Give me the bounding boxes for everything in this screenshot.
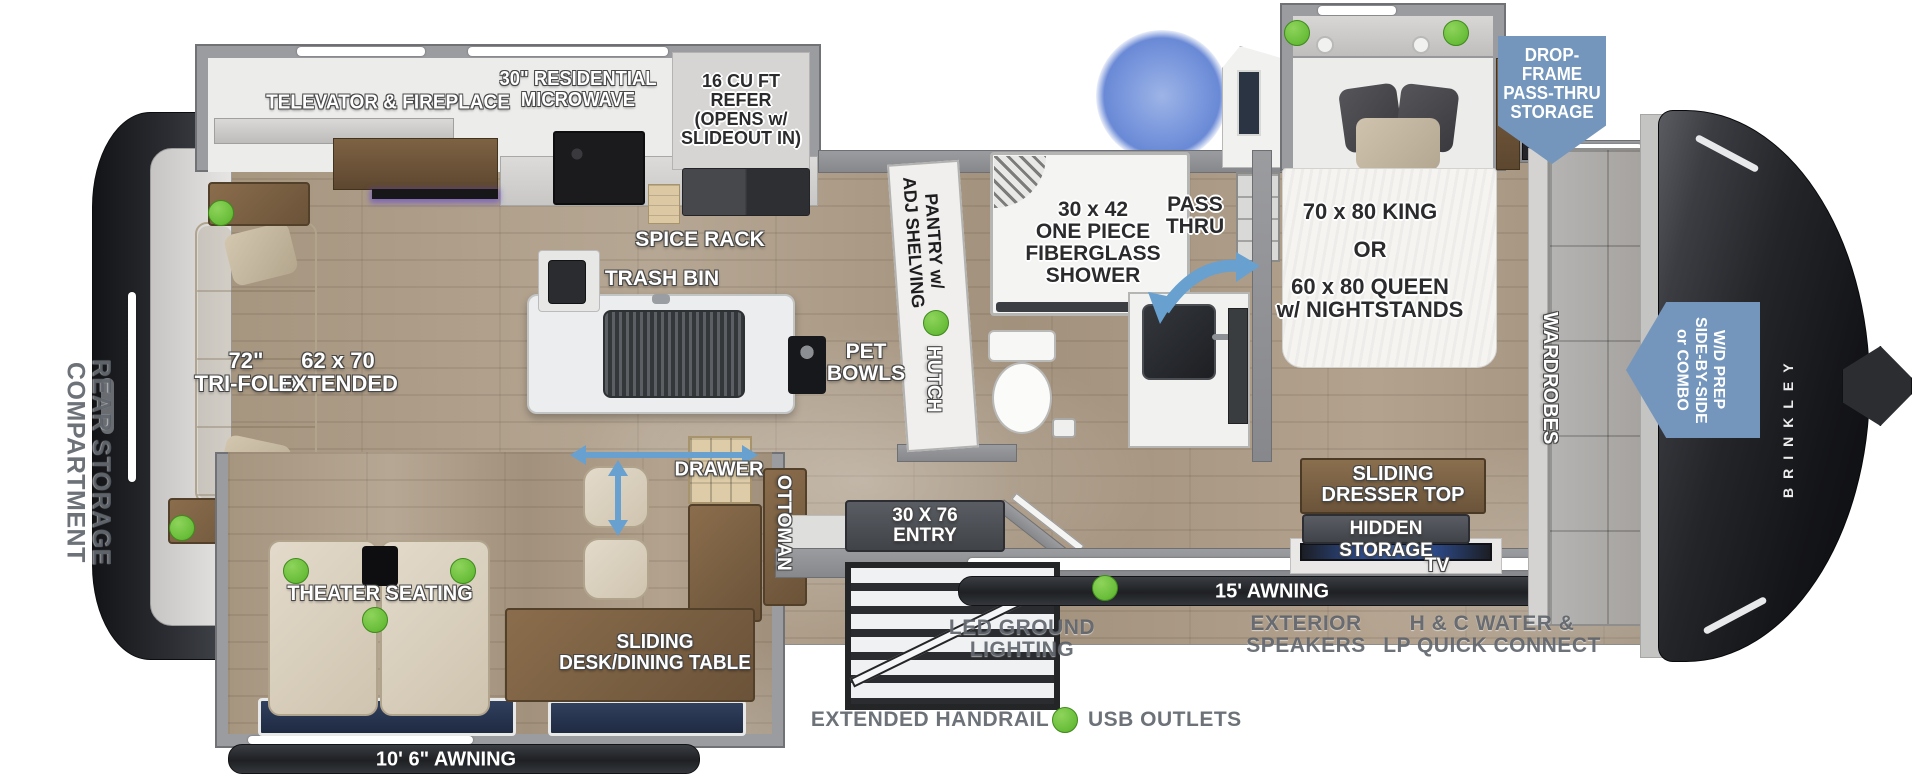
usb-legend-dot <box>1052 707 1078 733</box>
awning-front-label: 15' AWNING <box>1215 581 1329 604</box>
bed-queen-label: 60 x 80 QUEEN w/ NIGHTSTANDS <box>1265 275 1475 321</box>
pass-thru-label: PASS THRU <box>1166 194 1224 238</box>
dimension-arrow-vertical <box>615 466 621 530</box>
hc-water-label: H & C WATER & LP QUICK CONNECT <box>1383 613 1601 657</box>
dinette-chair <box>583 538 649 600</box>
island-faucet <box>652 294 670 304</box>
spice-rack-label: SPICE RACK <box>635 228 765 252</box>
led-ground-label: LED GROUND LIGHTING <box>949 617 1095 661</box>
brand-wordmark: BRINKLEY <box>1780 278 1796 498</box>
toilet-bowl <box>992 362 1052 434</box>
window-highlight <box>248 736 473 744</box>
usb-outlet-dot <box>208 200 234 226</box>
usb-outlet-dot <box>1092 575 1118 601</box>
trash-bin <box>548 260 586 304</box>
dimension-arrow-horizontal <box>576 452 752 458</box>
tv-label: TV <box>1425 555 1449 577</box>
theater-console <box>362 546 398 586</box>
window-highlight <box>297 47 425 56</box>
pet-bowls-label: PET BOWLS <box>827 341 905 385</box>
hidden-storage-sign: HIDDEN STORAGE <box>1302 514 1470 544</box>
bed-pillow-tan <box>1356 118 1440 170</box>
theater-label: THEATER SEATING <box>287 582 472 606</box>
sconce-light <box>1316 36 1334 54</box>
handrail-label: EXTENDED HANDRAIL <box>811 708 1049 732</box>
window-highlight <box>468 47 668 56</box>
televator-credenza <box>333 138 498 190</box>
usb-outlet-dot <box>1443 20 1469 46</box>
usb-legend-label: USB OUTLETS <box>1088 708 1242 732</box>
window-highlight <box>1318 6 1396 15</box>
usb-outlet-dot <box>283 558 309 584</box>
televator-label: TELEVATOR & FIREPLACE <box>266 92 510 115</box>
usb-outlet-dot <box>923 310 949 336</box>
sliding-dresser-sign: SLIDING DRESSER TOP <box>1300 458 1486 514</box>
usb-outlet-dot <box>169 515 195 541</box>
dinette-table <box>688 504 762 622</box>
extended-label: 62 x 70 EXTENDED <box>278 349 398 395</box>
refer-label: 16 CU FT REFER (OPENS w/ SLIDEOUT IN) <box>673 72 809 148</box>
island-sink-grate <box>603 310 745 398</box>
toilet-paper <box>1052 418 1076 438</box>
awning-rear-label: 10' 6" AWNING <box>376 749 516 772</box>
speakers-label: EXTERIOR SPEAKERS <box>1246 613 1366 657</box>
sconce-light <box>1412 36 1430 54</box>
rear-window-highlight <box>128 292 136 482</box>
hutch-label: HUTCH <box>922 346 944 413</box>
blue-accent-circle <box>1096 30 1228 162</box>
pet-bowls-unit <box>788 336 826 394</box>
bed-or-label: OR <box>1354 237 1387 263</box>
floorplan-diagram: REAR STORAGE COMPARTMENT PANT <box>0 0 1920 776</box>
fireplace-strip <box>372 189 498 199</box>
microwave-label: 30" RESIDENTIAL MICROWAVE <box>491 69 666 111</box>
bed <box>1282 168 1497 368</box>
usb-outlet-dot <box>450 558 476 584</box>
pass-thru-window <box>1237 70 1261 136</box>
slide-window <box>548 700 746 736</box>
wd-prep-callout-label: W/D PREP SIDE-BY-SIDE or COMBO <box>1672 310 1727 430</box>
drop-frame-callout-label: DROP-FRAME PASS-THRU STORAGE <box>1503 46 1601 122</box>
desk-label: SLIDING DESK/DINING TABLE <box>541 632 769 674</box>
spice-rack-cabinet <box>648 184 680 224</box>
drawer-label: DRAWER <box>675 459 764 482</box>
range-stove <box>553 131 645 205</box>
shower-label: 30 x 42 ONE PIECE FIBERGLASS SHOWER <box>998 199 1188 287</box>
wardrobes-label: WARDROBES <box>1538 312 1561 444</box>
usb-outlet-dot <box>362 607 388 633</box>
refrigerator <box>682 168 810 216</box>
usb-outlet-dot <box>1284 20 1310 46</box>
trash-bin-label: TRASH BIN <box>605 267 719 291</box>
ottoman-label: OTTOMAN <box>772 475 794 571</box>
toilet-tank <box>988 330 1056 362</box>
bed-king-label: 70 x 80 KING <box>1303 199 1438 225</box>
entry-sign: 30 X 76 ENTRY <box>845 500 1005 552</box>
rear-storage-label: REAR STORAGE COMPARTMENT <box>62 265 115 660</box>
